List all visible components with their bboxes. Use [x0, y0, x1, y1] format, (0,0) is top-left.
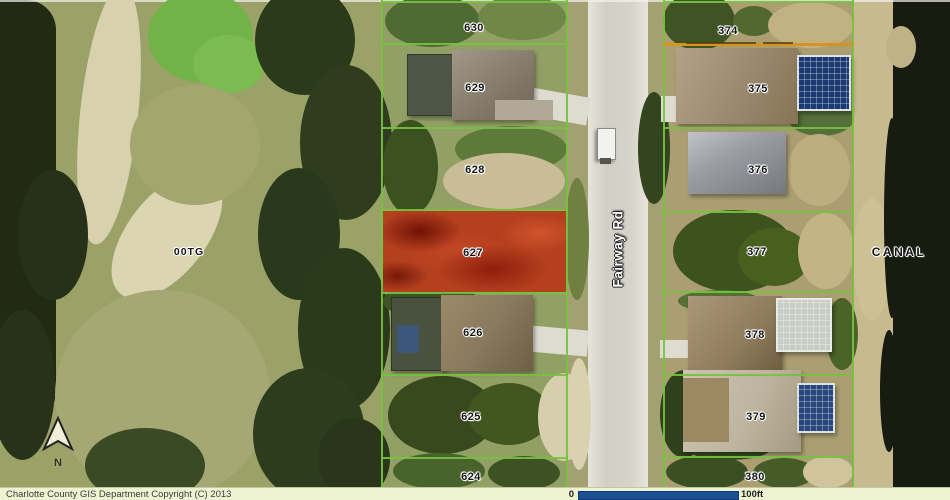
house-626-roof: [441, 295, 533, 371]
parcel-label-380: 380: [745, 471, 765, 483]
parcel-line: [381, 1, 568, 3]
house-629-wing: [495, 100, 553, 120]
area-label-00tg: 00TG: [174, 246, 204, 258]
parcel-label-628: 628: [465, 164, 485, 176]
shrub-patch: [565, 178, 589, 300]
scale-bar: [578, 491, 739, 500]
tree-canopy: [666, 455, 748, 487]
sand-patch: [443, 153, 565, 209]
house-379-pool: [797, 383, 835, 433]
driveway: [527, 325, 589, 356]
parcel-line: [566, 0, 568, 487]
house-378-lanai: [776, 298, 832, 352]
parcel-label-378: 378: [745, 329, 765, 341]
parcel-line: [381, 43, 568, 45]
parcel-line: [663, 456, 854, 458]
parcel-line: [381, 209, 568, 211]
parcel-label-374: 374: [718, 25, 738, 37]
house-375-roof: [676, 48, 798, 124]
house-378-roof: [688, 296, 782, 370]
parcel-label-625: 625: [461, 411, 481, 423]
shrub-patch: [488, 456, 560, 487]
truck: [597, 128, 616, 160]
parcel-label-629: 629: [465, 82, 485, 94]
house-626-pool: [397, 325, 419, 353]
status-bar: Charlotte County GIS Department Copyrigh…: [0, 487, 950, 500]
sand-patch: [803, 456, 853, 487]
house-629-lanai: [407, 54, 457, 116]
house-379-wing: [683, 378, 729, 442]
canal-water: [893, 0, 950, 487]
house-375-pool-cage: [797, 55, 851, 111]
truck-cab: [600, 158, 611, 164]
canal-label: CANAL: [872, 245, 927, 259]
copyright-text: Charlotte County GIS Department Copyrigh…: [6, 489, 231, 500]
scale-start-label: 0: [560, 489, 574, 500]
sand-patch: [567, 358, 591, 470]
parcel-line: [381, 127, 568, 129]
north-arrow-icon: [41, 416, 75, 452]
parcel-label-627: 627: [463, 247, 483, 259]
parcel-label-626: 626: [463, 327, 483, 339]
canal-edge: [880, 330, 898, 452]
parcel-label-624: 624: [461, 471, 481, 483]
north-arrow: N: [40, 416, 76, 468]
parcel-label-376: 376: [748, 164, 768, 176]
parcel-line: [381, 374, 568, 376]
parcel-line: [663, 211, 854, 213]
tree-canopy: [18, 170, 88, 300]
parcel-line: [381, 292, 568, 294]
parcel-label-377: 377: [747, 246, 767, 258]
house-376-roof: [688, 132, 786, 194]
scale-end-label: 100ft: [741, 489, 763, 500]
parcel-line: [663, 1, 854, 3]
road-label-fairway-rd: Fairway Rd: [611, 210, 626, 287]
tree-canopy: [383, 120, 438, 215]
parcel-label-630: 630: [464, 22, 484, 34]
parcel-line: [663, 0, 665, 487]
parcel-line: [381, 457, 568, 459]
map-canvas[interactable]: 630 629 628 627 626 625 624 374 375 376 …: [0, 0, 950, 487]
highlight-line-dash: [686, 42, 756, 44]
sand-patch: [886, 26, 916, 68]
highlight-line-dash: [763, 42, 793, 44]
parcel-line: [663, 374, 854, 376]
parcel-line: [852, 0, 854, 487]
parcel-line: [663, 291, 854, 293]
parcel-label-379: 379: [746, 411, 766, 423]
canal-edge: [884, 118, 900, 318]
parcel-line: [663, 127, 854, 129]
fairway-light: [130, 85, 260, 205]
sand-patch: [798, 213, 854, 289]
sand-patch: [788, 134, 850, 206]
north-arrow-label: N: [40, 457, 76, 469]
parcel-line: [381, 0, 383, 487]
gis-map-window: 630 629 628 627 626 625 624 374 375 376 …: [0, 0, 950, 500]
parcel-label-375: 375: [748, 83, 768, 95]
